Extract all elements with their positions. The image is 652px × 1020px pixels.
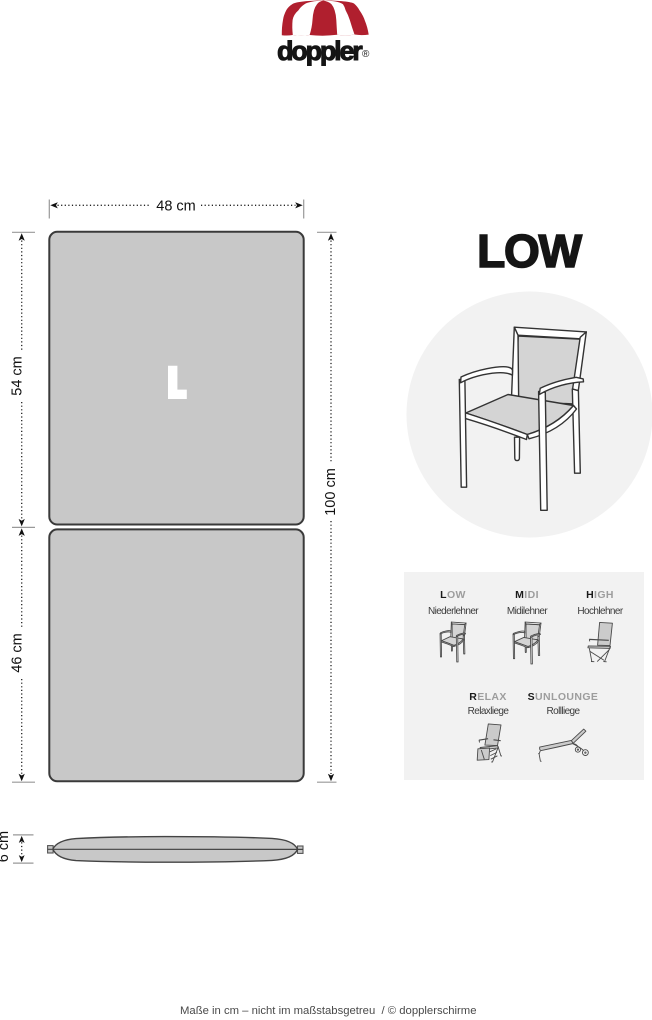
svg-text:6 cm: 6 cm bbox=[0, 831, 12, 862]
svg-text:48 cm: 48 cm bbox=[156, 199, 196, 215]
svg-text:46 cm: 46 cm bbox=[9, 633, 25, 673]
svg-text:100 cm: 100 cm bbox=[323, 468, 339, 516]
svg-text:54 cm: 54 cm bbox=[9, 356, 25, 396]
